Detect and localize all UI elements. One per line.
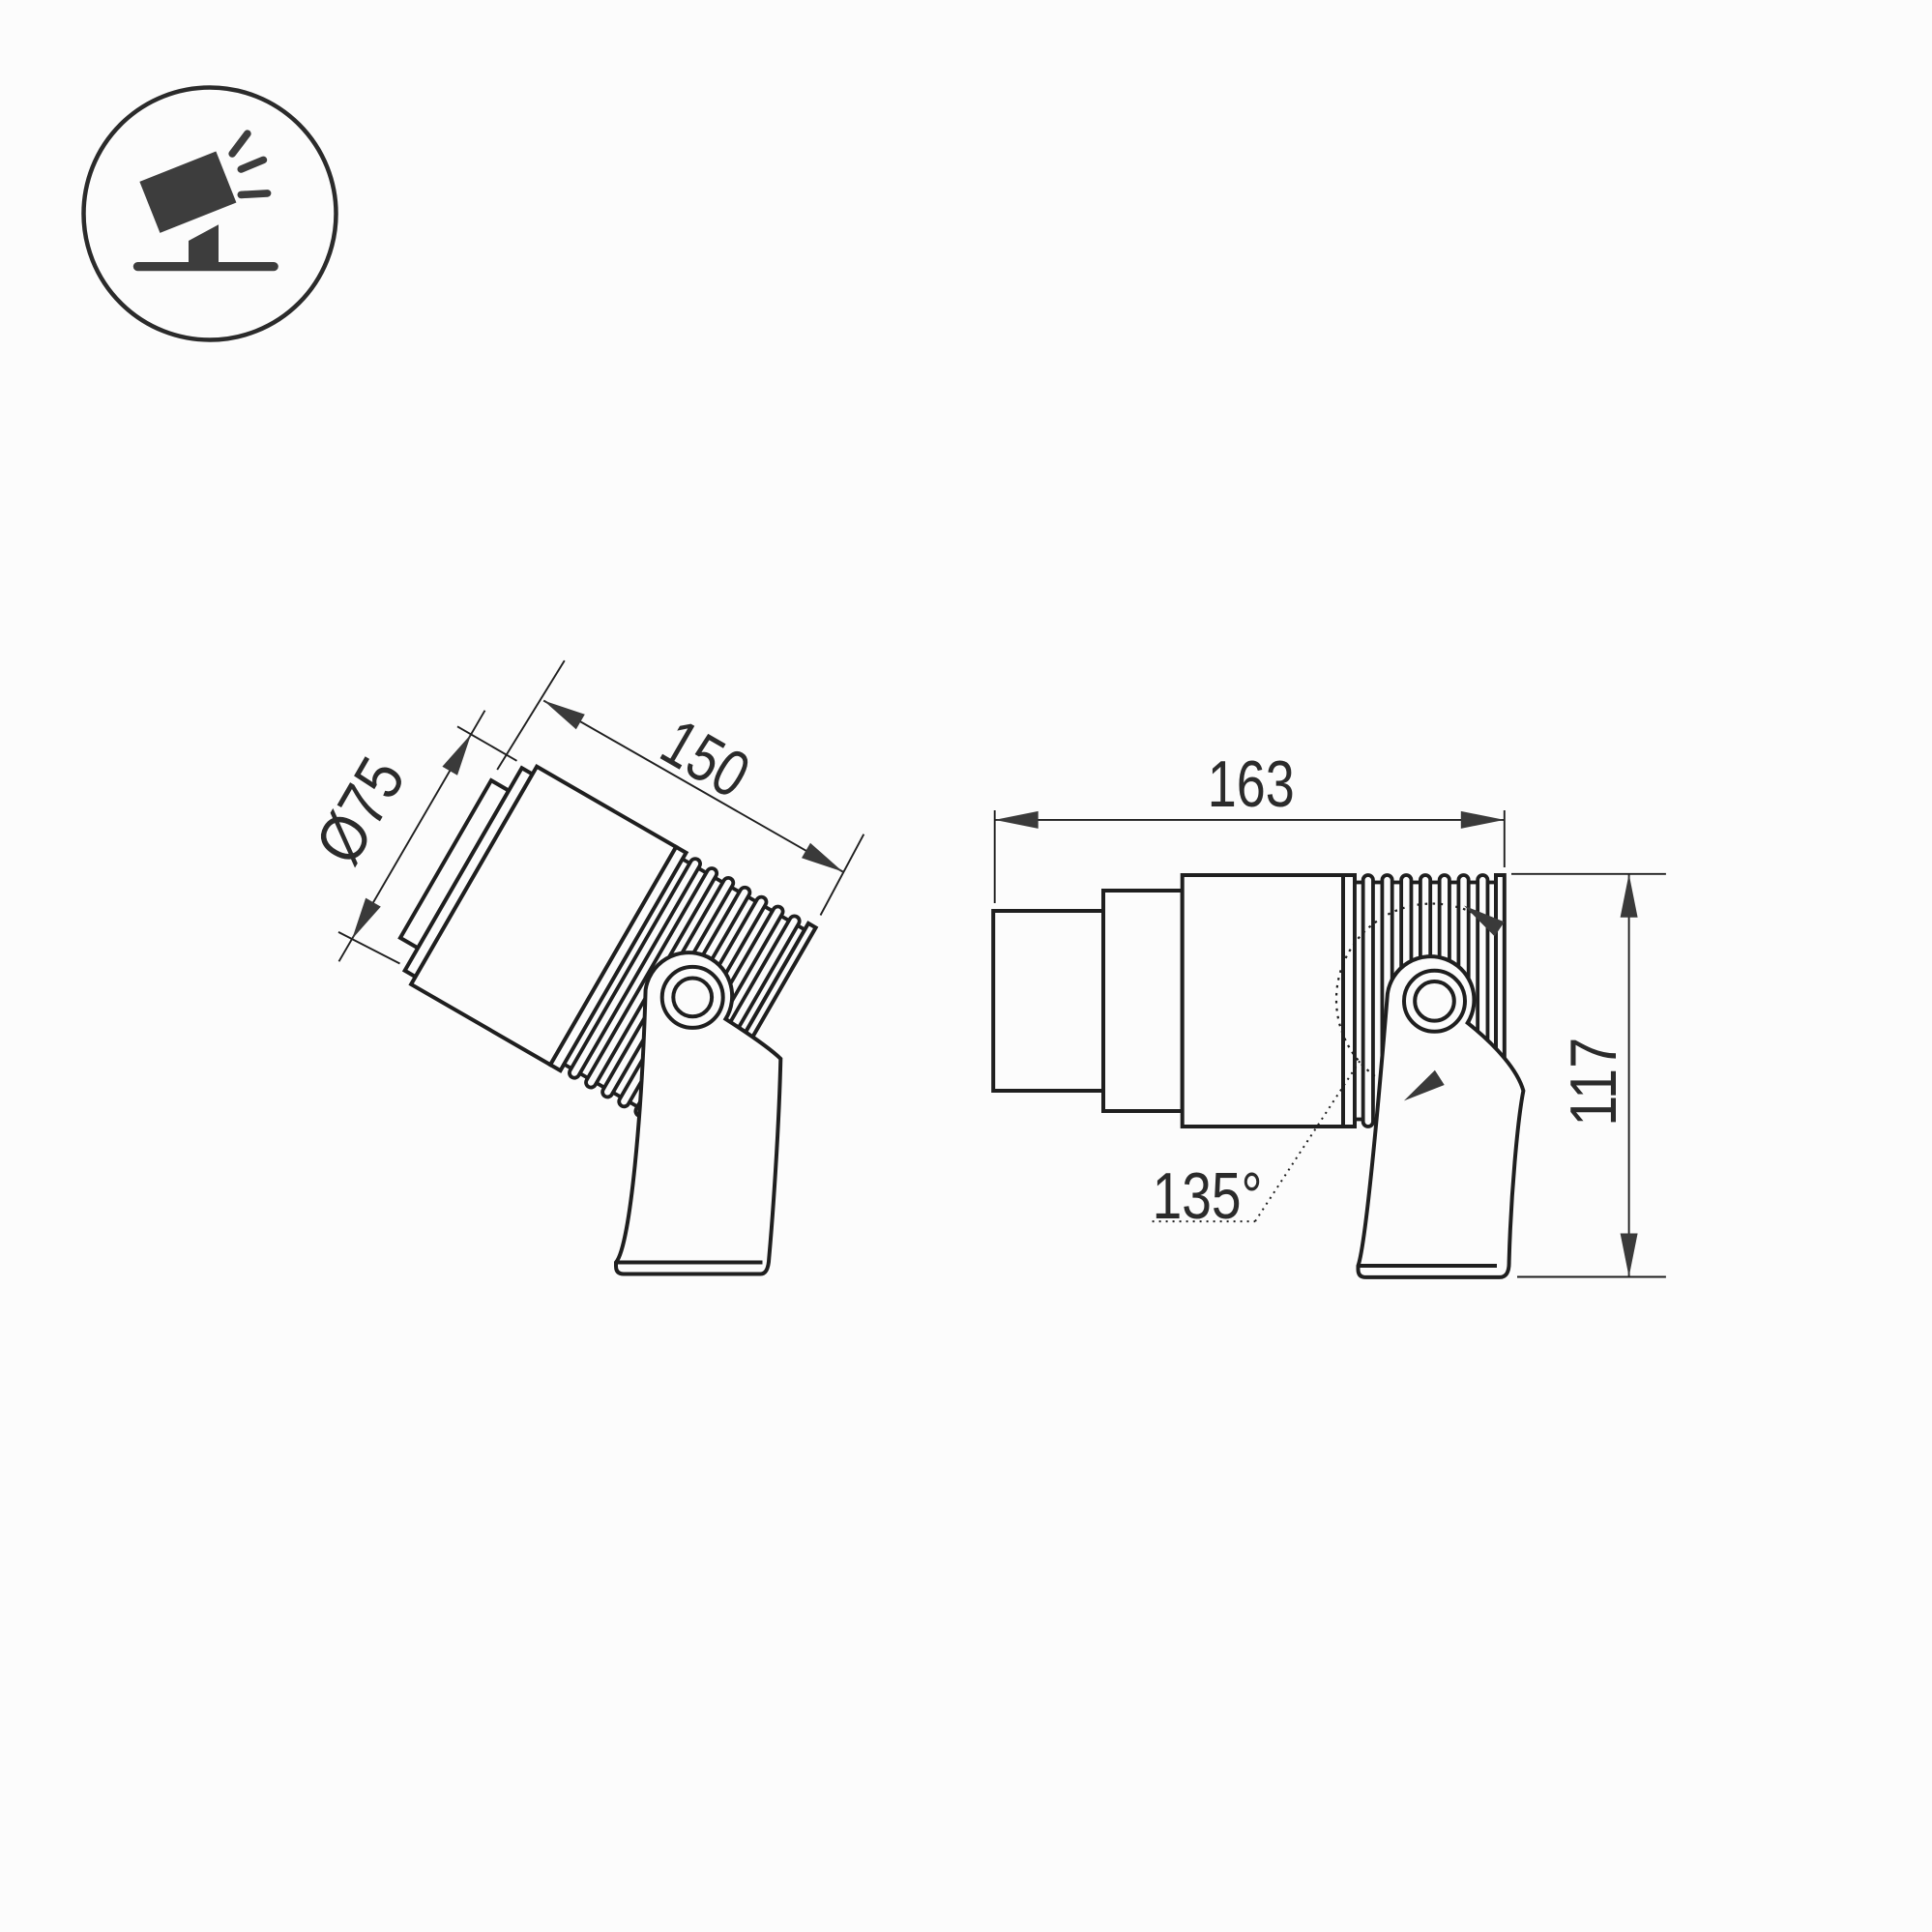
svg-text:163: 163 xyxy=(1208,747,1295,821)
svg-text:117: 117 xyxy=(1557,1038,1630,1127)
